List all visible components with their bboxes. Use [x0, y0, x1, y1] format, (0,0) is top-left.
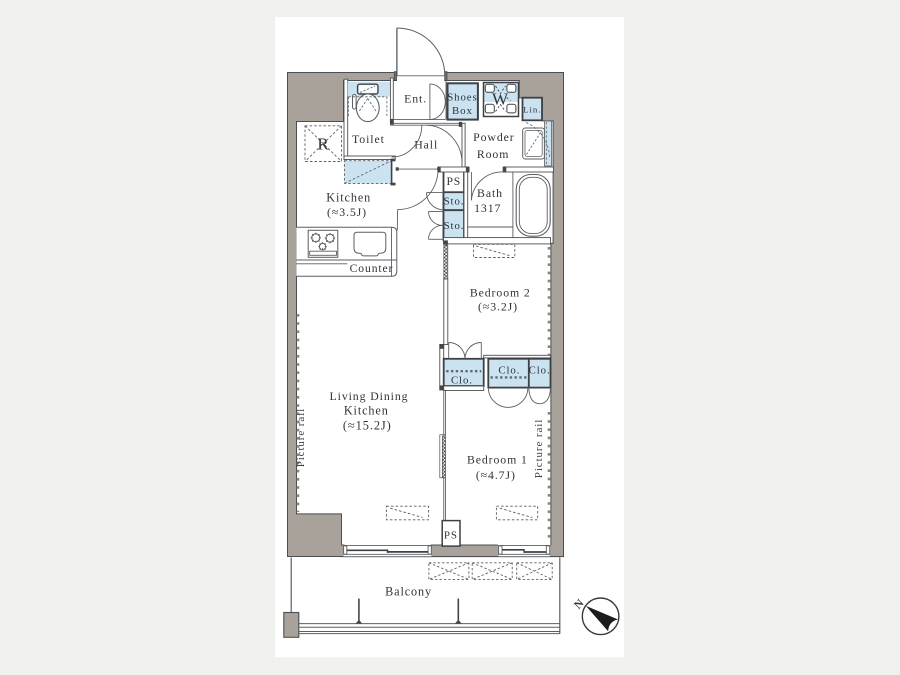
svg-text:(≈15.2J): (≈15.2J) [343, 419, 392, 433]
svg-text:(≈3.5J): (≈3.5J) [327, 205, 367, 219]
svg-text:Kitchen: Kitchen [326, 191, 371, 205]
svg-text:Bath: Bath [477, 186, 503, 200]
svg-text:Ent.: Ent. [404, 92, 427, 106]
svg-text:1317: 1317 [474, 201, 501, 215]
svg-text:Kitchen: Kitchen [344, 403, 389, 417]
svg-text:PS: PS [446, 175, 461, 188]
svg-text:Bedroom 1: Bedroom 1 [467, 452, 528, 466]
svg-text:Lin.: Lin. [523, 105, 541, 115]
svg-text:Toilet: Toilet [352, 132, 385, 146]
svg-text:R: R [317, 135, 329, 154]
svg-text:Counter: Counter [350, 262, 394, 275]
svg-text:Living Dining: Living Dining [330, 389, 409, 403]
svg-text:Shoes: Shoes [447, 92, 477, 104]
svg-text:Box: Box [452, 105, 473, 117]
svg-text:W: W [492, 89, 509, 108]
svg-text:Picture rail: Picture rail [533, 419, 545, 478]
svg-text:Powder: Powder [473, 130, 514, 144]
svg-text:Clo.: Clo. [451, 375, 473, 387]
svg-text:Hall: Hall [414, 138, 438, 152]
svg-text:(≈4.7J): (≈4.7J) [476, 468, 516, 482]
svg-text:Balcony: Balcony [385, 585, 432, 599]
svg-text:Clo.: Clo. [498, 365, 520, 377]
svg-text:Sto.: Sto. [444, 196, 465, 208]
svg-text:Room: Room [477, 147, 509, 161]
svg-text:Sto.: Sto. [444, 220, 465, 232]
svg-text:(≈3.2J): (≈3.2J) [478, 300, 518, 314]
svg-text:PS: PS [444, 530, 458, 542]
svg-text:Picture rail: Picture rail [295, 408, 307, 467]
svg-text:Clo.: Clo. [529, 365, 551, 377]
svg-text:Bedroom 2: Bedroom 2 [470, 286, 531, 300]
